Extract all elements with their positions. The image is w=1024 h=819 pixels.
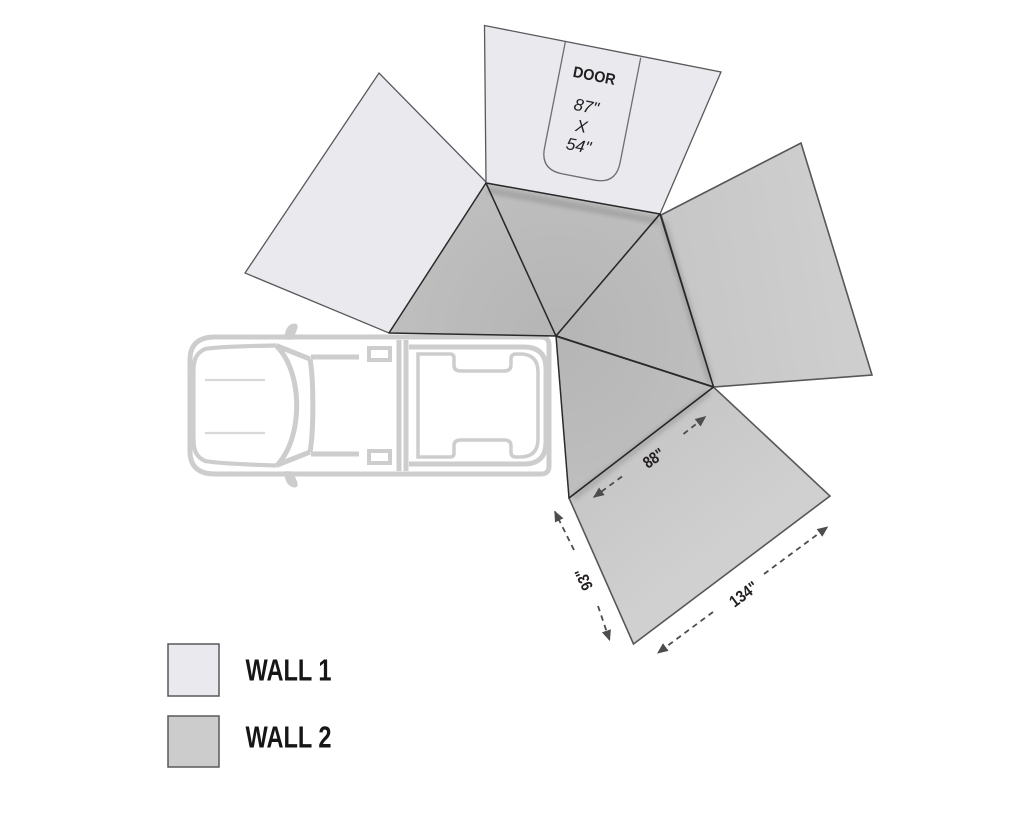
svg-text:WALL 2: WALL 2	[246, 719, 332, 754]
svg-text:93": 93"	[571, 565, 597, 592]
svg-text:134": 134"	[726, 578, 762, 611]
svg-text:WALL 1: WALL 1	[246, 653, 332, 688]
